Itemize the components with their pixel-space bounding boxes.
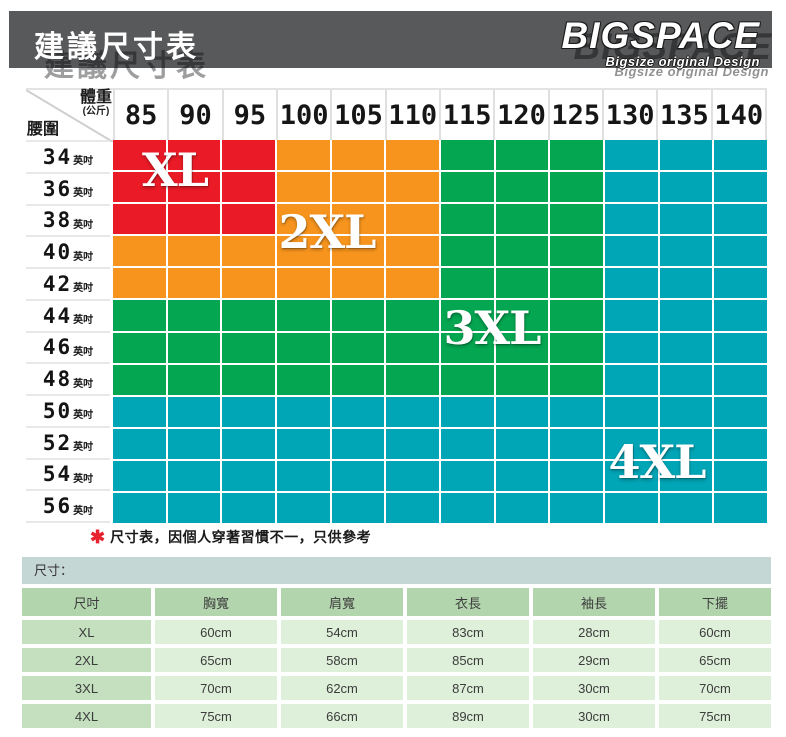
waist-label-cell: 56英吋 [26,489,110,523]
asterisk-icon: ✱ [90,528,105,546]
waist-unit: 英吋 [73,400,93,421]
weight-header-cell: 85 [113,90,167,140]
size-matrix-cell [714,397,767,427]
size-matrix-cell [113,461,166,491]
size-matrix-cell [660,236,713,266]
size-matrix-cell [605,493,658,523]
size-matrix-cell [660,493,713,523]
size-matrix-cell [386,300,439,330]
size-matrix-cell [550,172,603,202]
size-section-label: 尺寸： [22,557,771,584]
table-value-cell: 54cm [281,620,403,644]
waist-unit: 英吋 [73,210,93,231]
size-matrix-cell [660,365,713,395]
size-matrix-cell [113,204,166,234]
size-matrix-cell [441,268,494,298]
size-matrix-cell [441,204,494,234]
size-matrix-cell [386,172,439,202]
size-matrix-cell [496,365,549,395]
size-matrix-cell [496,268,549,298]
size-matrix-cell [605,397,658,427]
size-matrix-cell [660,300,713,330]
weight-header-cell: 100 [276,90,330,140]
size-matrix-cell [277,300,330,330]
size-matrix-cell [386,429,439,459]
table-value-cell: 62cm [281,676,403,700]
waist-unit: 英吋 [73,178,93,199]
size-matrix-cell [714,365,767,395]
size-matrix-cell [168,397,221,427]
measurements-table: 尺吋胸寬肩寬衣長袖長下擺XL60cm54cm83cm28cm60cm2XL65c… [22,588,771,728]
size-matrix-cell [168,461,221,491]
waist-unit: 英吋 [73,242,93,263]
size-matrix-cell [168,268,221,298]
size-zone-label: XL [142,147,208,193]
size-matrix-cell [496,140,549,170]
size-zone-label: 4XL [608,439,705,485]
waist-label-cell: 34英吋 [26,140,110,172]
size-matrix-cell [550,140,603,170]
disclaimer-text: 尺寸表，因個人穿著習慣不一，只供參考 [110,527,371,547]
size-matrix-cell [550,268,603,298]
table-value-cell: 30cm [533,704,655,728]
size-matrix-cell [332,300,385,330]
size-matrix-cell [332,172,385,202]
brand-name: BIGSPACE [561,17,760,54]
table-header-cell: 尺吋 [22,588,151,616]
size-matrix-cell [714,429,767,459]
brand-tagline: Bigsize original Design [561,54,760,69]
size-matrix-cell [113,268,166,298]
weight-header-cell: 110 [385,90,439,140]
waist-value: 40 [43,240,72,264]
size-matrix-cell [168,236,221,266]
size-matrix-cell [332,397,385,427]
size-matrix-cell [550,300,603,330]
size-matrix-cell [496,204,549,234]
size-matrix-cell [332,140,385,170]
table-header-cell: 肩寬 [281,588,403,616]
weight-header-cell: 120 [493,90,547,140]
size-matrix-cell [441,365,494,395]
size-matrix-cell [441,461,494,491]
size-matrix-cell [222,140,275,170]
table-header-cell: 衣長 [407,588,529,616]
size-matrix-cell [222,172,275,202]
table-value-cell: 60cm [659,620,771,644]
size-matrix-cell [222,493,275,523]
size-zone-label: 2XL [278,209,375,255]
size-matrix-cell [550,461,603,491]
size-matrix-cell [496,236,549,266]
table-size-cell: 2XL [22,648,151,672]
size-matrix-cell [441,172,494,202]
size-matrix-cell [550,333,603,363]
waist-value: 56 [43,494,72,518]
size-matrix-cell [332,365,385,395]
size-matrix-cell [496,397,549,427]
waist-value: 36 [43,177,72,201]
size-matrix-cell [496,172,549,202]
weight-header-cell: 125 [548,90,602,140]
size-matrix-cell [496,461,549,491]
size-matrix-cell [222,365,275,395]
size-matrix-cell [113,300,166,330]
weight-header-cell: 95 [222,90,276,140]
size-matrix-cell [386,365,439,395]
size-matrix-cell [386,333,439,363]
weight-header-cell: 140 [711,90,767,140]
waist-value: 42 [43,272,72,296]
size-matrix-cell [605,300,658,330]
header-bar: 建議尺寸表 BIGSPACE Bigsize original Design [9,11,772,68]
table-value-cell: 70cm [659,676,771,700]
size-matrix-cell [550,204,603,234]
size-matrix-cell [222,333,275,363]
waist-unit: 英吋 [73,496,93,517]
weight-header-row: 859095100105110115120125130135140 [113,88,767,140]
size-matrix-cell [222,268,275,298]
table-value-cell: 70cm [155,676,277,700]
size-matrix-cell [714,493,767,523]
waist-unit: 英吋 [73,464,93,485]
matrix-corner-cell: 體重 (公斤) 腰圍 [26,88,113,140]
size-matrix-cell [168,365,221,395]
waist-value: 52 [43,431,72,455]
size-matrix-cell [496,429,549,459]
waist-label-cell: 50英吋 [26,394,110,426]
size-matrix-cell [660,333,713,363]
size-matrix-cell [222,204,275,234]
table-value-cell: 29cm [533,648,655,672]
size-matrix-cell [605,172,658,202]
weight-header-cell: 105 [330,90,384,140]
size-matrix-cell [714,333,767,363]
waist-label-cell: 54英吋 [26,458,110,490]
size-matrix-cell [386,140,439,170]
size-matrix-cell [386,461,439,491]
waist-value: 38 [43,208,72,232]
table-size-cell: XL [22,620,151,644]
weight-header-cell: 135 [656,90,710,140]
table-value-cell: 28cm [533,620,655,644]
size-matrix-cell [441,493,494,523]
size-matrix-cell [332,429,385,459]
waist-label-cell: 52英吋 [26,426,110,458]
size-matrix-cell [441,429,494,459]
size-matrix-cell [714,140,767,170]
size-matrix-cell [605,268,658,298]
waist-label-cell: 38英吋 [26,204,110,236]
waist-unit: 英吋 [73,337,93,358]
disclaimer-note: ✱ 尺寸表，因個人穿著習慣不一，只供參考 [90,527,371,547]
weight-header-cell: 130 [602,90,656,140]
table-value-cell: 66cm [281,704,403,728]
size-matrix-cell [332,268,385,298]
size-matrix-cell [660,268,713,298]
size-matrix-cell [332,461,385,491]
waist-axis-label: 腰圍 [27,115,59,139]
size-matrix-cell [714,300,767,330]
table-header-cell: 袖長 [533,588,655,616]
table-value-cell: 65cm [155,648,277,672]
size-matrix: XL2XL3XL4XL [113,140,767,523]
size-matrix-cell [332,493,385,523]
waist-unit: 英吋 [73,432,93,453]
waist-value: 50 [43,399,72,423]
size-matrix-cell [714,172,767,202]
page-title: 建議尺寸表 [34,22,199,66]
size-matrix-cell [714,236,767,266]
size-matrix-cell [277,397,330,427]
table-value-cell: 58cm [281,648,403,672]
table-size-cell: 3XL [22,676,151,700]
table-value-cell: 75cm [659,704,771,728]
size-matrix-cell [660,204,713,234]
waist-unit: 英吋 [73,146,93,167]
size-matrix-cell [386,236,439,266]
size-matrix-cell [168,204,221,234]
size-matrix-cell [496,493,549,523]
size-matrix-cell [441,140,494,170]
waist-unit: 英吋 [73,273,93,294]
waist-label-cell: 46英吋 [26,331,110,363]
waist-label-cell: 36英吋 [26,172,110,204]
table-value-cell: 85cm [407,648,529,672]
waist-label-cell: 42英吋 [26,267,110,299]
size-matrix-cell [277,140,330,170]
waist-label-cell: 44英吋 [26,299,110,331]
size-matrix-cell [386,204,439,234]
table-value-cell: 75cm [155,704,277,728]
weight-header-cell: 115 [439,90,493,140]
size-matrix-cell [277,429,330,459]
size-matrix-cell [113,493,166,523]
table-header-cell: 胸寬 [155,588,277,616]
waist-value: 44 [43,304,72,328]
size-matrix-cell [277,365,330,395]
size-matrix-cell [605,140,658,170]
waist-value: 46 [43,335,72,359]
size-matrix-cell [550,397,603,427]
table-value-cell: 89cm [407,704,529,728]
size-matrix-cell [277,461,330,491]
size-matrix-cell [550,236,603,266]
size-matrix-cell [441,397,494,427]
size-matrix-cell [660,140,713,170]
waist-unit: 英吋 [73,369,93,390]
table-value-cell: 87cm [407,676,529,700]
size-matrix-cell [714,461,767,491]
table-value-cell: 83cm [407,620,529,644]
size-matrix-cell [168,300,221,330]
size-matrix-cell [113,333,166,363]
size-matrix-cell [277,172,330,202]
size-matrix-cell [113,236,166,266]
waist-value: 48 [43,367,72,391]
size-matrix-cell [605,333,658,363]
size-matrix-cell [113,429,166,459]
size-chart-page: 建議尺寸表 BIGSPACE Bigsize original Design 體… [0,0,786,737]
size-matrix-cell [277,493,330,523]
table-value-cell: 65cm [659,648,771,672]
size-matrix-cell [113,365,166,395]
waist-unit: 英吋 [73,305,93,326]
brand-logo: BIGSPACE Bigsize original Design [561,17,760,69]
size-matrix-cell [168,333,221,363]
weight-header-cell: 90 [167,90,221,140]
size-zone-label: 3XL [443,305,540,351]
weight-axis-label: 體重 (公斤) [80,90,112,117]
size-matrix-cell [277,333,330,363]
size-section-band: 尺寸： [22,557,771,584]
size-matrix-cell [222,300,275,330]
size-matrix-cell [113,397,166,427]
waist-value: 34 [43,145,72,169]
table-size-cell: 4XL [22,704,151,728]
size-matrix-cell [714,268,767,298]
size-matrix-cell [441,236,494,266]
size-matrix-cell [168,493,221,523]
size-matrix-cell [660,397,713,427]
size-matrix-cell [550,493,603,523]
size-matrix-cell [550,365,603,395]
waist-label-cell: 40英吋 [26,235,110,267]
size-matrix-cell [660,172,713,202]
table-header-cell: 下擺 [659,588,771,616]
size-matrix-cell [605,204,658,234]
size-matrix-cell [168,429,221,459]
size-matrix-cell [222,236,275,266]
size-matrix-cell [386,268,439,298]
table-value-cell: 60cm [155,620,277,644]
waist-label-column: 34英吋36英吋38英吋40英吋42英吋44英吋46英吋48英吋50英吋52英吋… [26,140,110,523]
size-matrix-cell [386,493,439,523]
waist-label-cell: 48英吋 [26,362,110,394]
table-value-cell: 30cm [533,676,655,700]
size-matrix-cell [550,429,603,459]
size-matrix-cell [386,397,439,427]
size-matrix-cell [222,397,275,427]
size-matrix-cell [605,365,658,395]
size-matrix-cell [605,236,658,266]
size-matrix-cell [332,333,385,363]
waist-value: 54 [43,462,72,486]
size-matrix-cell [222,429,275,459]
size-matrix-cell [277,268,330,298]
size-matrix-cell [714,204,767,234]
size-matrix-cell [222,461,275,491]
